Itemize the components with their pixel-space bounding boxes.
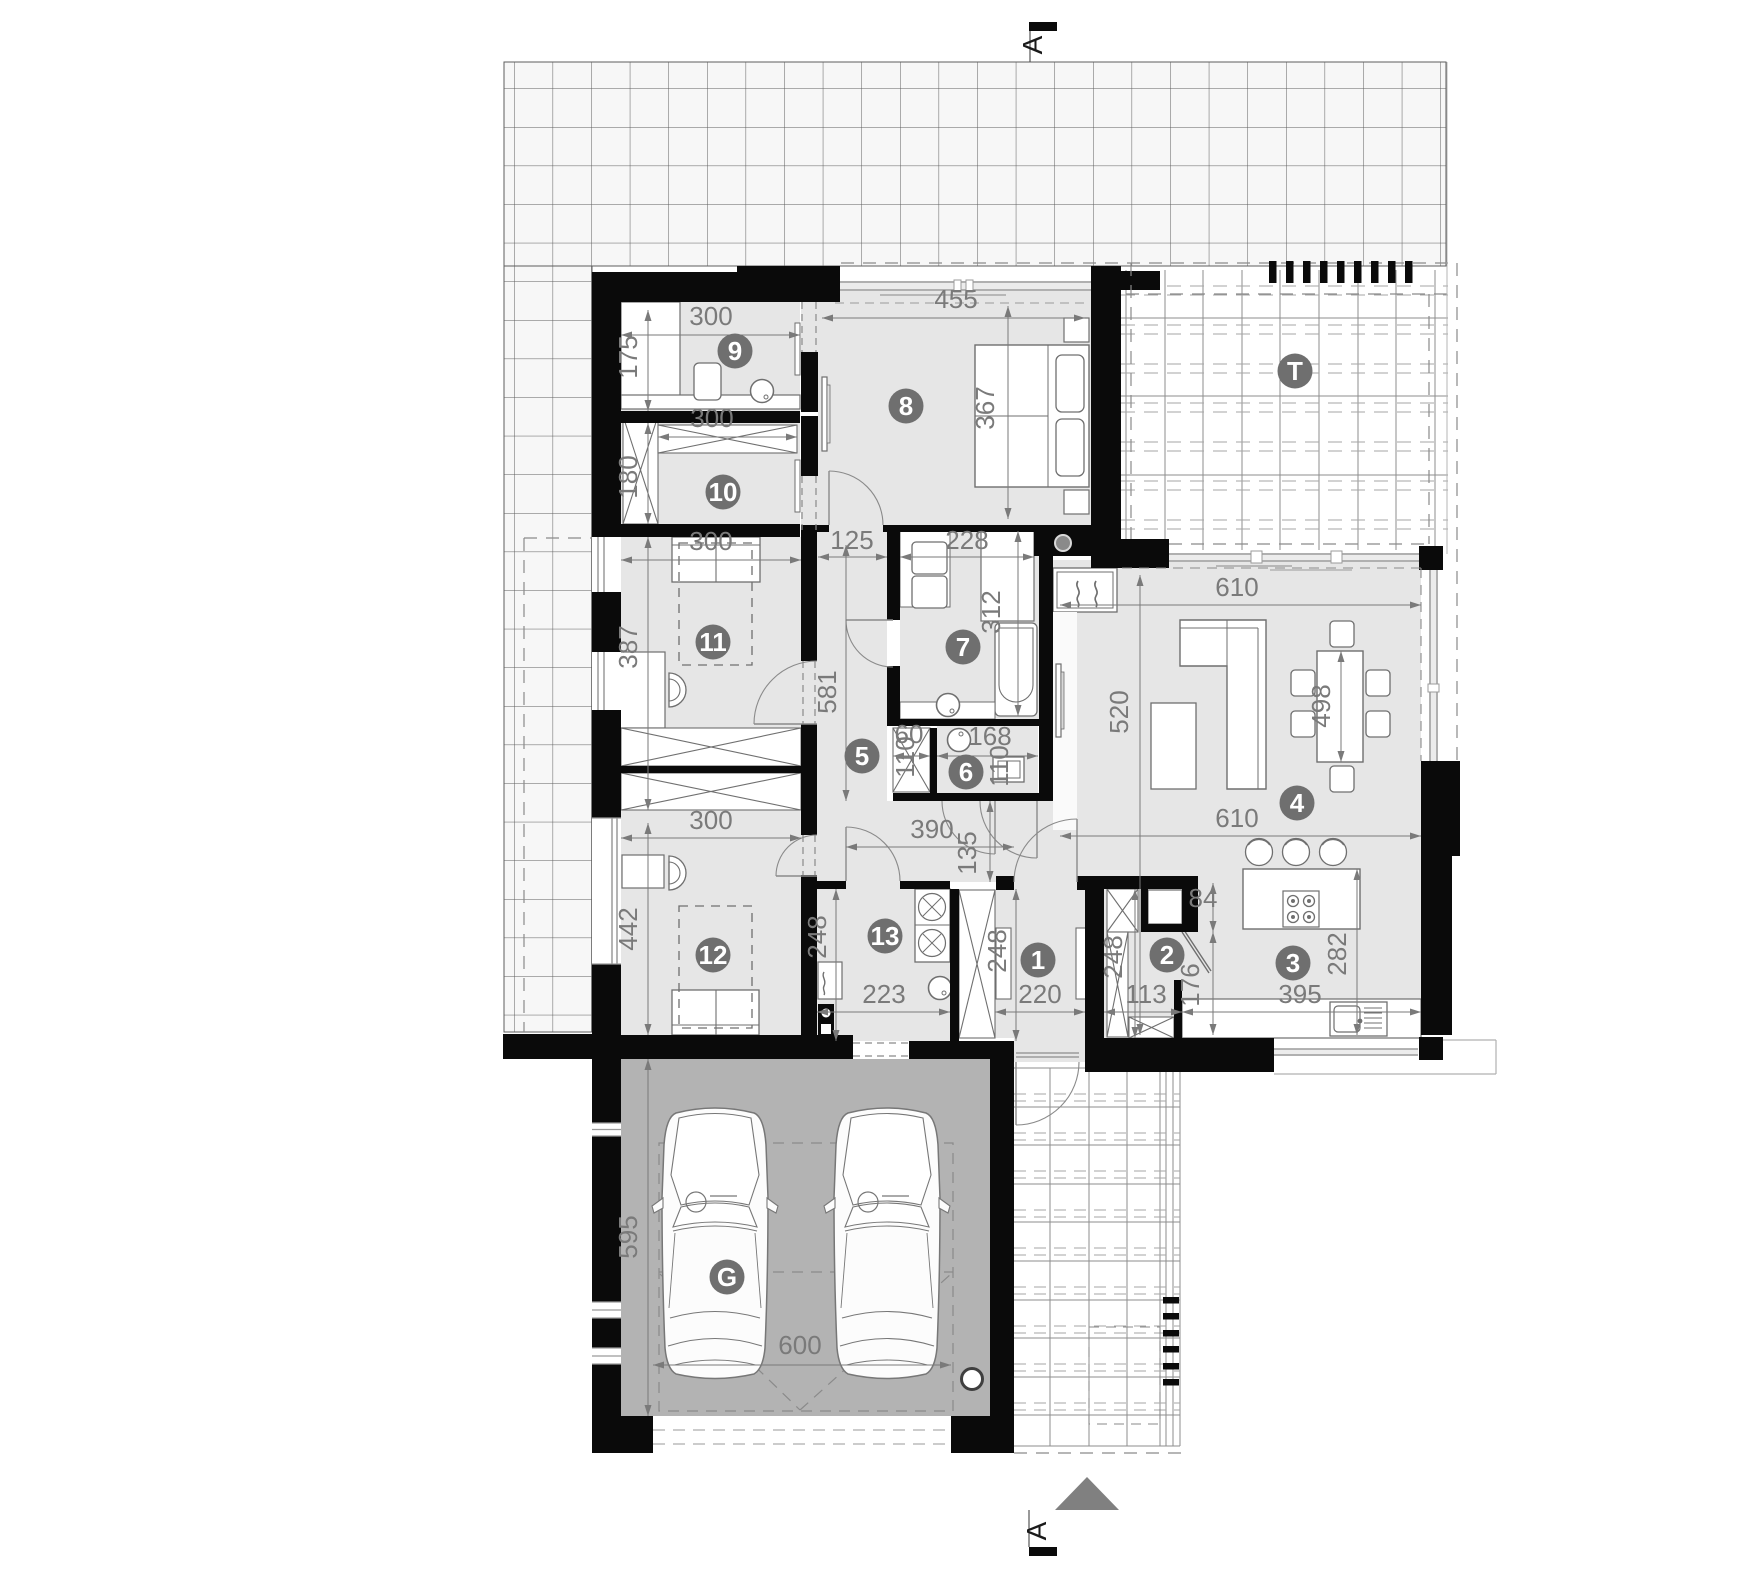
svg-text:9: 9 bbox=[728, 336, 742, 366]
svg-text:595: 595 bbox=[613, 1215, 643, 1258]
svg-text:10: 10 bbox=[709, 477, 738, 507]
svg-text:113: 113 bbox=[1125, 979, 1166, 1009]
svg-text:5: 5 bbox=[855, 741, 869, 771]
svg-text:312: 312 bbox=[976, 590, 1006, 633]
svg-text:248: 248 bbox=[1098, 935, 1128, 978]
svg-text:110: 110 bbox=[984, 745, 1014, 786]
svg-text:300: 300 bbox=[689, 805, 732, 835]
svg-text:498: 498 bbox=[1306, 684, 1336, 727]
svg-text:4: 4 bbox=[1290, 788, 1305, 818]
svg-text:12: 12 bbox=[699, 940, 728, 970]
svg-text:7: 7 bbox=[956, 632, 970, 662]
svg-text:248: 248 bbox=[982, 929, 1012, 972]
svg-text:248: 248 bbox=[802, 915, 832, 958]
svg-text:367: 367 bbox=[970, 386, 1000, 429]
svg-text:3: 3 bbox=[1286, 948, 1300, 978]
svg-text:387: 387 bbox=[613, 625, 643, 668]
svg-text:455: 455 bbox=[934, 284, 977, 314]
svg-text:135: 135 bbox=[952, 831, 982, 874]
svg-text:581: 581 bbox=[812, 670, 842, 713]
svg-text:520: 520 bbox=[1104, 690, 1134, 733]
svg-text:1: 1 bbox=[1031, 945, 1045, 975]
svg-text:300: 300 bbox=[689, 526, 732, 556]
svg-text:390: 390 bbox=[910, 814, 953, 844]
svg-text:600: 600 bbox=[778, 1330, 821, 1360]
svg-text:84: 84 bbox=[1189, 883, 1218, 913]
svg-text:610: 610 bbox=[1215, 572, 1258, 602]
svg-text:220: 220 bbox=[1018, 979, 1061, 1009]
svg-text:300: 300 bbox=[689, 301, 732, 331]
svg-text:228: 228 bbox=[945, 525, 988, 555]
svg-text:13: 13 bbox=[871, 921, 900, 951]
svg-text:125: 125 bbox=[830, 525, 873, 555]
svg-text:A: A bbox=[1021, 1521, 1052, 1540]
svg-text:176: 176 bbox=[1175, 963, 1205, 1006]
svg-text:282: 282 bbox=[1322, 932, 1352, 975]
svg-text:T: T bbox=[1287, 356, 1303, 386]
svg-text:A: A bbox=[1017, 35, 1048, 54]
svg-text:8: 8 bbox=[899, 391, 913, 421]
svg-text:180: 180 bbox=[613, 455, 643, 498]
svg-text:110: 110 bbox=[890, 736, 920, 777]
svg-text:175: 175 bbox=[613, 335, 643, 378]
svg-text:442: 442 bbox=[613, 907, 643, 950]
svg-text:300: 300 bbox=[690, 403, 733, 433]
svg-text:11: 11 bbox=[699, 627, 727, 657]
svg-text:2: 2 bbox=[1160, 940, 1174, 970]
svg-text:6: 6 bbox=[959, 757, 973, 787]
svg-text:223: 223 bbox=[862, 979, 905, 1009]
svg-text:395: 395 bbox=[1278, 979, 1321, 1009]
svg-text:610: 610 bbox=[1215, 803, 1258, 833]
svg-text:G: G bbox=[717, 1262, 737, 1292]
